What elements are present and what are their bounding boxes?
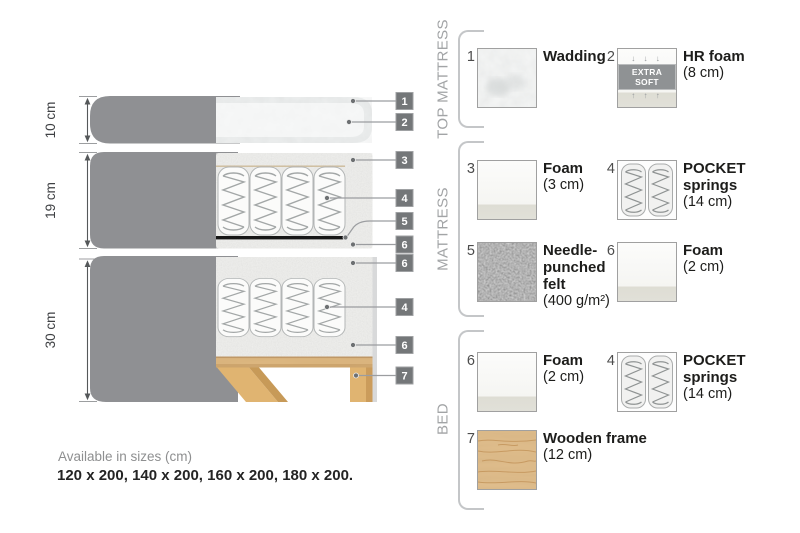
available-sizes-values: 120 x 200, 140 x 200, 160 x 200, 180 x 2… [57,467,353,484]
legend-item-size: (400 g/m²) [543,293,627,310]
badge-6a: 6 [396,236,413,253]
extra-soft-badge: EXTRA SOFT [618,64,676,90]
legend-item-number: 2 [600,49,615,65]
bed-shape [90,256,377,402]
legend-item-hr-foam: 2 ↓ ↓ ↓ EXTRA SOFT ↑ ↑ ↑ HR foam (8 cm) [617,48,677,108]
dimension-10cm: 10 cm [43,97,97,144]
section-title-top-mattress: TOP MATTRESS [435,19,452,139]
svg-text:6: 6 [401,258,407,270]
top-mattress-shape [90,96,372,144]
legend-item-number: 7 [460,431,475,447]
legend-item-size: (2 cm) [683,259,783,276]
svg-text:3: 3 [401,155,407,167]
svg-text:4: 4 [401,302,408,314]
legend-item-pocket-springs: 4 POCKET springs (14 cm) [617,160,677,220]
foam-swatch [617,242,677,302]
dimension-19cm: 19 cm [43,153,97,249]
legend-item-size: (8 cm) [683,65,783,82]
mattress-shape [90,152,373,249]
svg-text:1: 1 [401,96,407,108]
arrows-down-icon: ↓ ↓ ↓ [618,54,676,63]
needle-punched-felt-swatch [477,242,537,302]
bed-right-edge [373,257,378,402]
dim-label-19cm: 19 cm [43,182,58,219]
legend-item-felt: 5 Needle-punched felt (400 g/m²) [477,242,537,302]
svg-text:4: 4 [401,193,408,205]
legend-item-size: (14 cm) [683,194,783,211]
dimension-30cm: 30 cm [43,259,97,402]
needle-punched-felt-layer [216,236,346,239]
badge-3: 3 [396,152,413,169]
dim-label-30cm: 30 cm [43,312,58,349]
badge-2: 2 [396,114,413,131]
legend-item-number: 4 [600,353,615,369]
layer-badges: 1 2 3 4 5 6 6 4 6 7 [396,93,413,385]
bed-construction-infographic: 10 cm 19 cm 30 cm [0,0,800,533]
badge-4: 4 [396,190,413,207]
wadding-swatch [477,48,537,108]
legend-item-number: 6 [600,243,615,259]
legend-item-number: 6 [460,353,475,369]
svg-text:7: 7 [401,371,407,383]
legend-item-pocket-springs-bed: 4 POCKET springs (14 cm) [617,352,677,412]
available-sizes-title: Available in sizes (cm) [58,449,192,464]
foam-swatch [477,352,537,412]
badge-5: 5 [396,213,413,230]
svg-text:2: 2 [401,117,407,129]
legend-item-foam-bed: 6 Foam (2 cm) [477,352,537,412]
dim-label-10cm: 10 cm [43,102,58,139]
legend-item-foam-2: 6 Foam (2 cm) [617,242,677,302]
badge-4b: 4 [396,299,413,316]
svg-text:6: 6 [401,240,407,252]
svg-text:5: 5 [401,216,407,228]
legend-item-size: (12 cm) [543,447,733,464]
wooden-frame-swatch [477,430,537,490]
legend-item-wooden-frame: 7 Wooden frame (12 cm) [477,430,537,490]
legend-item-name: POCKET springs [683,160,783,194]
section-title-mattress: MATTRESS [435,187,452,271]
legend-item-size: (14 cm) [683,386,783,403]
legend-item-number: 3 [460,161,475,177]
section-title-bed: BED [435,403,452,435]
badge-6b: 6 [396,255,413,272]
legend-item-name: Foam [683,242,783,259]
bed-cutaway [216,257,377,402]
arrows-up-icon: ↑ ↑ ↑ [618,91,676,100]
legend-item-wadding: 1 Wadding [477,48,537,108]
legend-item-name: Wooden frame [543,430,733,447]
badge-7: 7 [396,367,413,384]
svg-text:6: 6 [401,340,407,352]
hr-foam-swatch: ↓ ↓ ↓ EXTRA SOFT ↑ ↑ ↑ [617,48,677,108]
pocket-springs-swatch [617,160,677,220]
badge-6c: 6 [396,337,413,354]
badge-1: 1 [396,93,413,110]
legend-item-name: HR foam [683,48,783,65]
legend-item-name: POCKET springs [683,352,783,386]
pocket-springs-swatch [617,352,677,412]
legend-item-number: 1 [460,49,475,65]
wooden-frame [216,357,373,403]
legend-item-foam-3: 3 Foam (3 cm) [477,160,537,220]
legend-item-number: 4 [600,161,615,177]
foam-swatch [477,160,537,220]
legend-item-number: 5 [460,243,475,259]
